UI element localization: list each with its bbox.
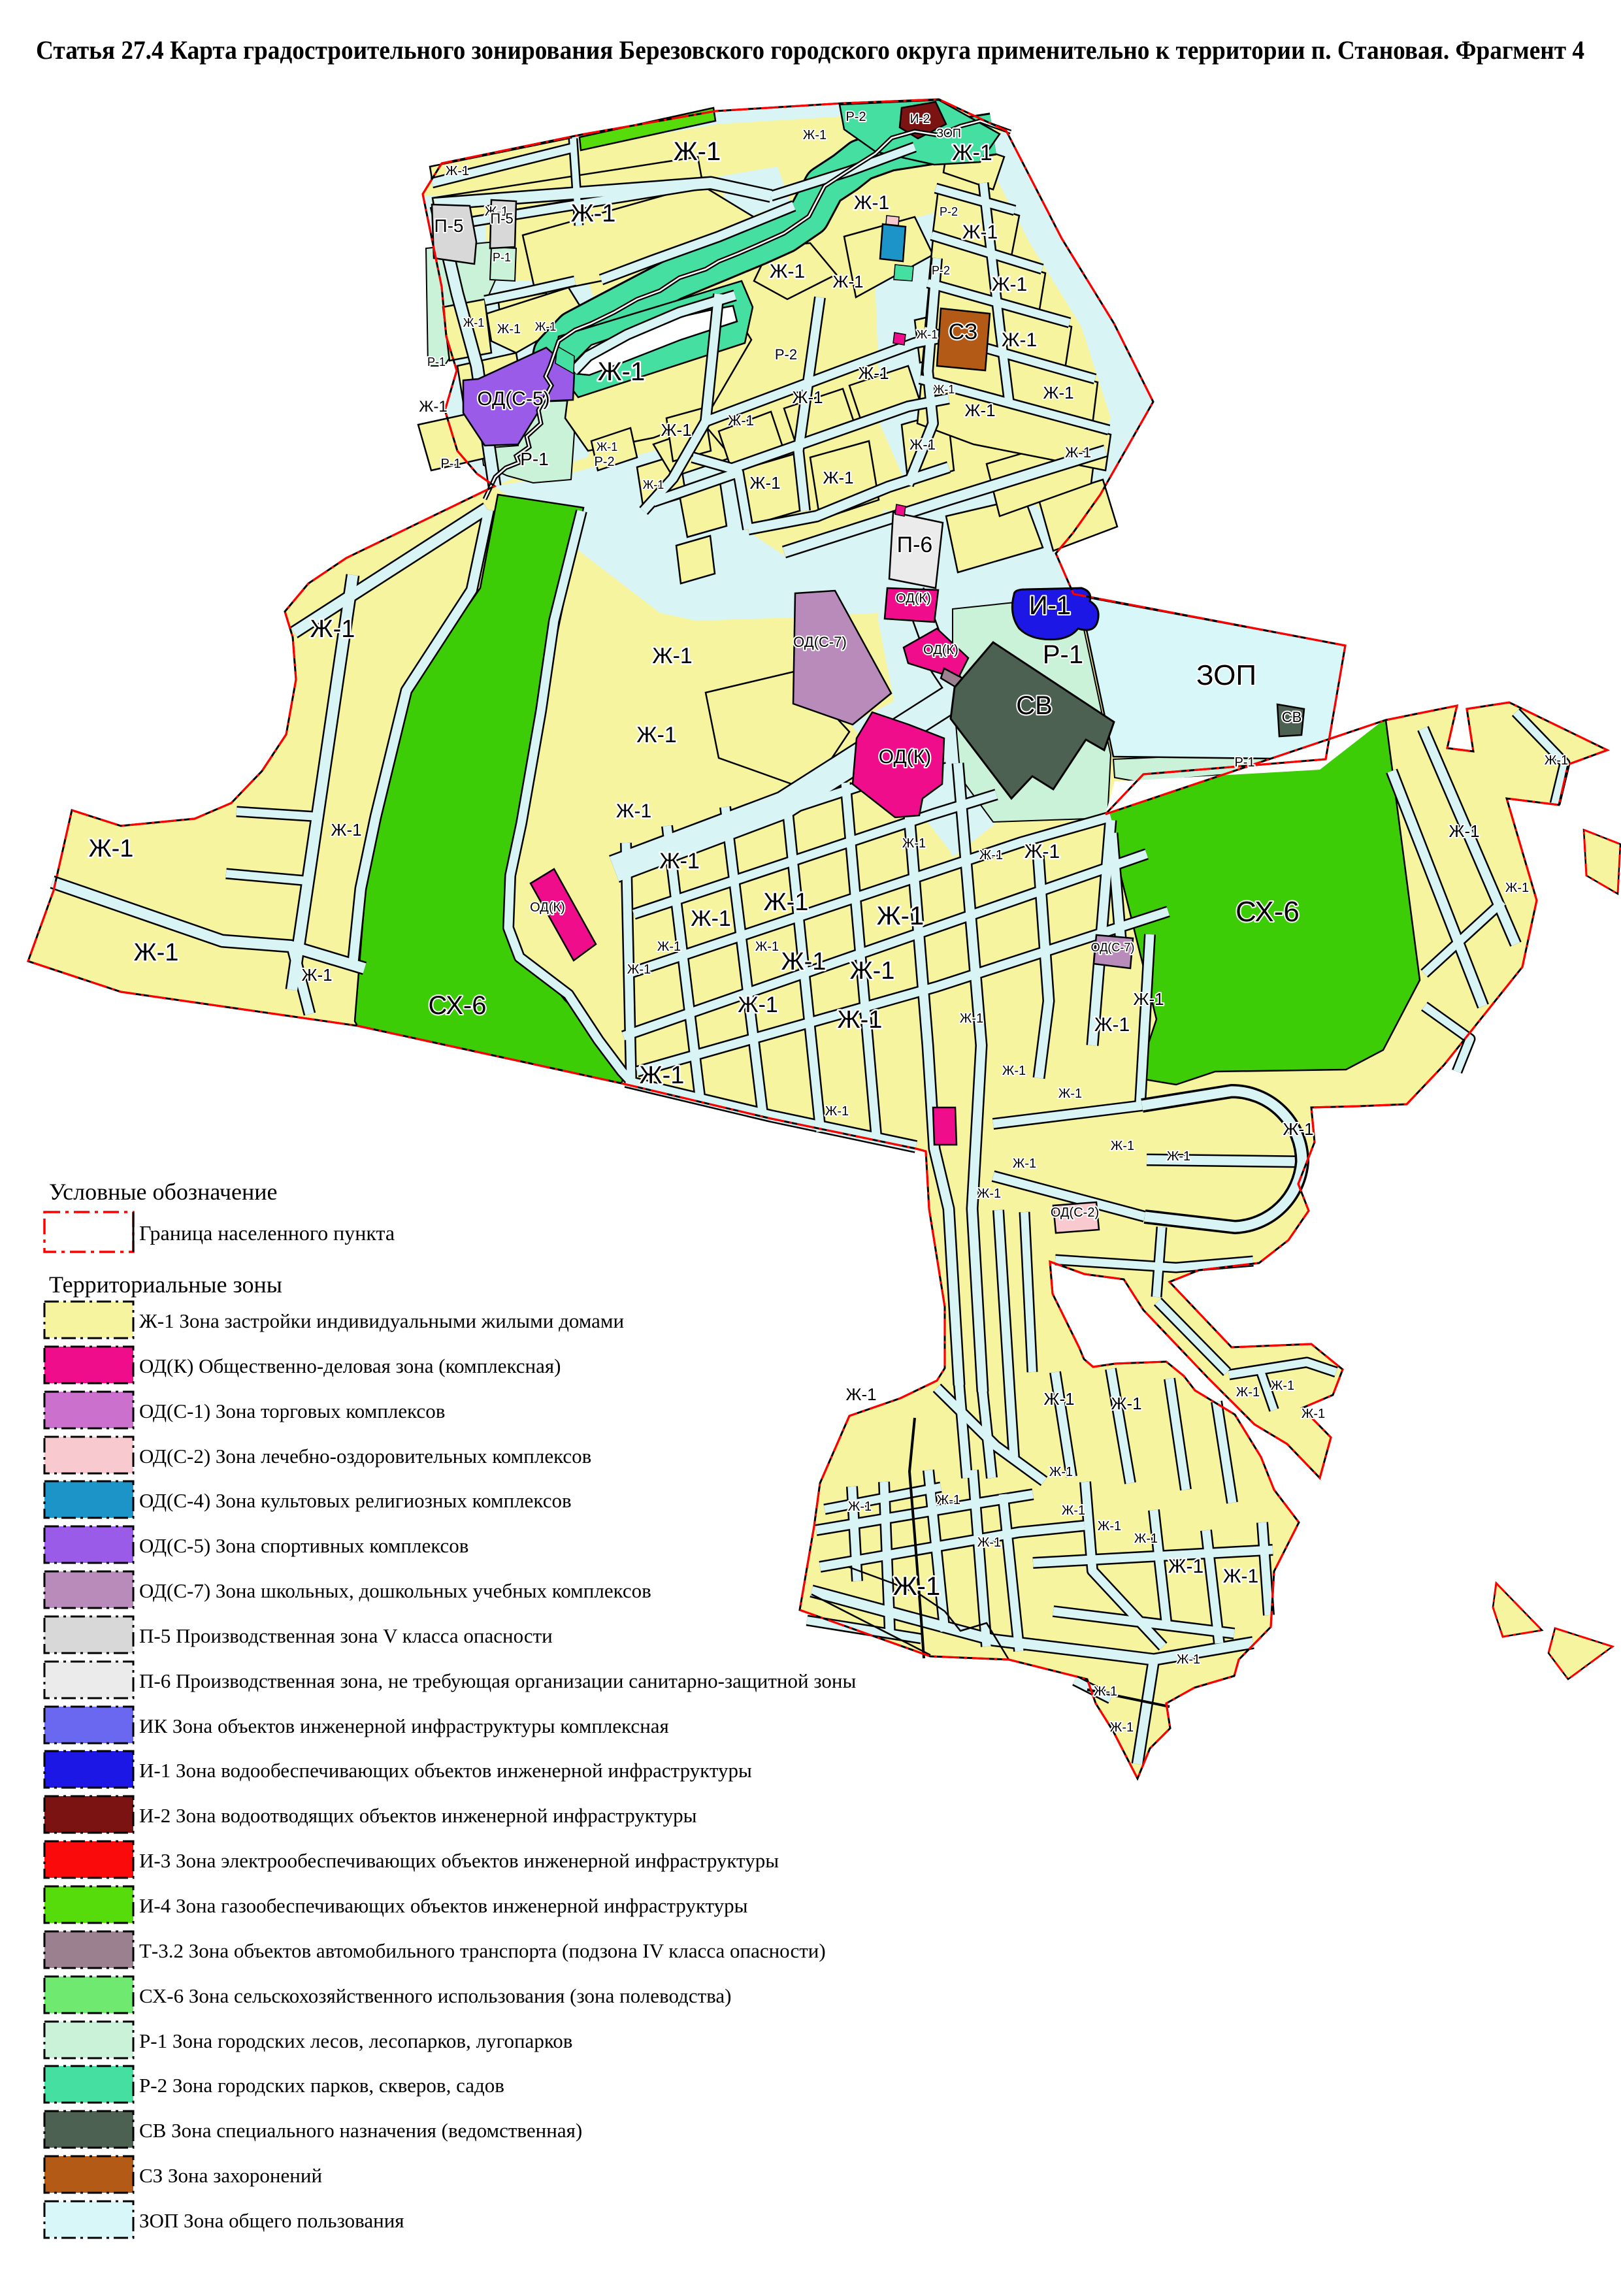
- svg-text:СХ-6: СХ-6: [1236, 896, 1300, 928]
- svg-text:Ж-1: Ж-1: [749, 473, 780, 493]
- svg-text:Ж-1: Ж-1: [803, 128, 827, 142]
- svg-text:Ж-1: Ж-1: [838, 1006, 883, 1034]
- svg-text:Ж-1: Ж-1: [960, 1011, 983, 1026]
- svg-text:ОД(К): ОД(К): [923, 643, 958, 657]
- svg-text:Ж-1: Ж-1: [992, 274, 1027, 295]
- svg-text:Ж-1: Ж-1: [134, 939, 179, 966]
- svg-text:Ж-1: Ж-1: [1283, 1119, 1313, 1139]
- svg-text:ОД(С-2): ОД(С-2): [1051, 1205, 1099, 1220]
- svg-text:Ж-1: Ж-1: [952, 140, 992, 165]
- svg-text:СХ-6 Зона сельскохозяйственног: СХ-6 Зона сельскохозяйственного использо…: [139, 1984, 731, 2007]
- svg-text:Ж-1: Ж-1: [310, 615, 355, 643]
- svg-text:Ж-1: Ж-1: [1111, 1139, 1134, 1153]
- svg-text:ОД(К): ОД(К): [530, 900, 565, 915]
- svg-text:ОД(С-4) Зона культовых религио: ОД(С-4) Зона культовых религиозных компл…: [139, 1489, 572, 1512]
- svg-text:Ж-1: Ж-1: [848, 1500, 872, 1514]
- svg-text:Ж-1: Ж-1: [1177, 1652, 1200, 1667]
- svg-text:Ж-1: Ж-1: [909, 436, 936, 453]
- svg-text:П-6 Производственная зона, не: П-6 Производственная зона, не требующая …: [139, 1669, 856, 1692]
- svg-text:Р-1: Р-1: [440, 457, 461, 471]
- svg-text:И-1: И-1: [1029, 591, 1071, 620]
- svg-text:Р-1: Р-1: [1043, 640, 1083, 669]
- svg-text:Ж-1: Ж-1: [792, 387, 823, 407]
- svg-text:Ж-1: Ж-1: [1098, 1519, 1121, 1533]
- svg-text:Ж-1: Ж-1: [419, 398, 448, 416]
- svg-text:Р-1: Р-1: [520, 449, 549, 469]
- svg-text:Ж-1: Ж-1: [1013, 1156, 1036, 1171]
- svg-text:Ж-1: Ж-1: [598, 357, 646, 386]
- svg-text:Статья 27.4 Карта градостроите: Статья 27.4 Карта градостроительного зон…: [36, 35, 1584, 65]
- svg-text:Ж-1: Ж-1: [652, 644, 693, 668]
- svg-text:ОД(С-2) Зона лечебно-оздоровит: ОД(С-2) Зона лечебно-оздоровительных ком…: [139, 1445, 591, 1468]
- svg-text:Р-1: Р-1: [427, 355, 446, 369]
- svg-text:Ж-1: Ж-1: [1111, 1394, 1141, 1413]
- svg-text:Ж-1: Ж-1: [1065, 444, 1091, 461]
- svg-text:Ж-1: Ж-1: [1167, 1149, 1190, 1164]
- svg-text:Ж-1: Ж-1: [1545, 753, 1568, 768]
- svg-text:Ж-1: Ж-1: [497, 322, 521, 336]
- svg-text:Ж-1: Ж-1: [616, 800, 651, 822]
- svg-text:Р-1 Зона городских лесов, лесо: Р-1 Зона городских лесов, лесопарков, лу…: [139, 2029, 572, 2052]
- svg-text:Ж-1: Ж-1: [640, 1062, 685, 1089]
- svg-text:Условные обозначение: Условные обозначение: [49, 1179, 277, 1205]
- svg-text:П-5: П-5: [434, 216, 463, 236]
- svg-text:ОД(С-1) Зона торговых комплекс: ОД(С-1) Зона торговых комплексов: [139, 1400, 445, 1422]
- svg-text:ОД(С-5): ОД(С-5): [477, 388, 549, 410]
- svg-text:И-1 Зона водообеспечивающих об: И-1 Зона водообеспечивающих объектов инж…: [139, 1759, 752, 1782]
- svg-text:Ж-1: Ж-1: [661, 420, 691, 440]
- svg-text:СВ: СВ: [1282, 709, 1302, 725]
- svg-text:Ж-1: Ж-1: [977, 1535, 1001, 1550]
- svg-text:СЗ Зона захоронений: СЗ Зона захоронений: [139, 2164, 322, 2187]
- svg-text:ОД(К): ОД(К): [879, 746, 931, 768]
- svg-text:Ж-1: Ж-1: [597, 440, 618, 453]
- svg-text:П-5 Производственная зона V кл: П-5 Производственная зона V класса опасн…: [139, 1624, 553, 1647]
- svg-text:Т-3.2 Зона объектов автомобиль: Т-3.2 Зона объектов автомобильного транс…: [139, 1939, 826, 1962]
- svg-text:Ж-1 Зона застройки индивидуаль: Ж-1 Зона застройки индивидуальными жилым…: [139, 1309, 624, 1332]
- svg-text:Р-1: Р-1: [493, 251, 511, 264]
- svg-text:Ж-1: Ж-1: [1271, 1379, 1294, 1393]
- svg-text:Ж-1: Ж-1: [1505, 881, 1529, 895]
- svg-text:ОД(К): ОД(К): [896, 591, 931, 606]
- svg-text:Р-2: Р-2: [594, 455, 614, 469]
- svg-text:Ж-1: Ж-1: [627, 962, 651, 977]
- svg-text:Ж-1: Ж-1: [1024, 841, 1060, 862]
- svg-text:Ж-1: Ж-1: [1094, 1014, 1130, 1036]
- svg-text:И-3 Зона электрообеспечивающих: И-3 Зона электрообеспечивающих объектов …: [139, 1849, 779, 1872]
- svg-text:Ж-1: Ж-1: [728, 412, 754, 429]
- svg-text:Ж-1: Ж-1: [934, 383, 955, 396]
- svg-text:Ж-1: Ж-1: [1002, 329, 1037, 351]
- svg-text:И-2 Зона водоотводящих объекто: И-2 Зона водоотводящих объектов инженерн…: [139, 1804, 697, 1827]
- svg-text:Ж-1: Ж-1: [657, 940, 681, 954]
- svg-text:Ж-1: Ж-1: [738, 992, 778, 1017]
- svg-text:Ж-1: Ж-1: [937, 1493, 960, 1507]
- svg-text:Ж-1: Ж-1: [331, 820, 361, 840]
- svg-text:Ж-1: Ж-1: [1236, 1385, 1260, 1400]
- svg-text:Р-2: Р-2: [775, 346, 797, 363]
- svg-text:ЗОП: ЗОП: [1196, 659, 1256, 691]
- svg-text:Ж-1: Ж-1: [691, 906, 731, 931]
- svg-text:Территориальные зоны: Территориальные зоны: [49, 1271, 282, 1298]
- svg-text:Ж-1: Ж-1: [850, 957, 895, 985]
- svg-text:Ж-1: Ж-1: [1134, 1532, 1158, 1546]
- svg-text:Ж-1: Ж-1: [1062, 1503, 1085, 1518]
- svg-text:Ж-1: Ж-1: [636, 723, 677, 747]
- svg-text:ЗОП: ЗОП: [936, 127, 961, 140]
- svg-text:Ж-1: Ж-1: [893, 1572, 941, 1601]
- svg-text:Р-2: Р-2: [940, 205, 958, 218]
- svg-text:СЗ: СЗ: [949, 320, 978, 344]
- svg-text:Ж-1: Ж-1: [854, 192, 889, 214]
- svg-text:СХ-6: СХ-6: [429, 991, 487, 1020]
- svg-text:Ж-1: Ж-1: [1043, 383, 1073, 402]
- svg-text:Ж-1: Ж-1: [1058, 1087, 1082, 1101]
- svg-text:Ж-1: Ж-1: [1223, 1566, 1258, 1587]
- svg-text:Ж-1: Ж-1: [917, 328, 938, 341]
- svg-text:П-6: П-6: [897, 533, 933, 557]
- svg-text:Ж-1: Ж-1: [825, 1104, 849, 1119]
- svg-text:Ж-1: Ж-1: [1449, 821, 1479, 841]
- svg-text:ОД(С-7): ОД(С-7): [1091, 941, 1135, 954]
- svg-text:ЗОП Зона общего пользования: ЗОП Зона общего пользования: [139, 2209, 404, 2232]
- svg-text:ОД(С-7): ОД(С-7): [793, 634, 847, 650]
- svg-text:Р-2: Р-2: [932, 264, 950, 277]
- svg-text:Ж-1: Ж-1: [764, 889, 809, 916]
- svg-text:Ж-1: Ж-1: [1094, 1684, 1117, 1699]
- svg-text:Ж-1: Ж-1: [659, 849, 700, 874]
- svg-text:СВ Зона специального назначени: СВ Зона специального назначения (ведомст…: [139, 2119, 582, 2142]
- svg-text:Ж-1: Ж-1: [755, 940, 779, 954]
- svg-text:СВ: СВ: [1016, 691, 1053, 720]
- svg-text:Ж-1: Ж-1: [1110, 1720, 1134, 1735]
- svg-text:Р-1: Р-1: [1234, 755, 1254, 770]
- svg-text:Ж-1: Ж-1: [977, 1187, 1001, 1201]
- svg-text:Ж-1: Ж-1: [823, 468, 853, 487]
- svg-text:Ж-1: Ж-1: [832, 272, 863, 291]
- svg-text:Ж-1: Ж-1: [877, 902, 925, 930]
- svg-text:Ж-1: Ж-1: [463, 316, 485, 329]
- svg-text:Ж-1: Ж-1: [89, 835, 134, 862]
- svg-text:Граница населенного пункта: Граница населенного пункта: [139, 1221, 395, 1245]
- svg-text:Ж-1: Ж-1: [1133, 989, 1164, 1009]
- svg-text:И-4 Зона газообеспечивающих об: И-4 Зона газообеспечивающих объектов инж…: [139, 1894, 748, 1917]
- svg-text:П-5: П-5: [490, 210, 513, 227]
- svg-text:Ж-1: Ж-1: [964, 401, 995, 420]
- svg-text:Ж-1: Ж-1: [1043, 1389, 1074, 1409]
- svg-text:И-2: И-2: [910, 112, 930, 126]
- svg-text:Р-2: Р-2: [845, 110, 866, 124]
- svg-text:Ж-1: Ж-1: [962, 221, 998, 243]
- svg-text:Ж-1: Ж-1: [571, 200, 616, 227]
- svg-text:Ж-1: Ж-1: [1049, 1465, 1073, 1479]
- svg-text:Ж-1: Ж-1: [770, 261, 805, 282]
- svg-text:ОД(С-5) Зона спортивных компле: ОД(С-5) Зона спортивных комплексов: [139, 1534, 468, 1557]
- svg-text:Ж-1: Ж-1: [446, 164, 469, 178]
- svg-text:Р-2 Зона городских парков, скв: Р-2 Зона городских парков, скверов, садо…: [139, 2074, 504, 2097]
- svg-text:Ж-1: Ж-1: [674, 137, 721, 166]
- svg-text:ОД(С-7) Зона школьных, дошколь: ОД(С-7) Зона школьных, дошкольных учебны…: [139, 1579, 651, 1602]
- svg-text:Ж-1: Ж-1: [858, 363, 889, 383]
- svg-text:Ж-1: Ж-1: [781, 948, 827, 976]
- svg-text:Ж-1: Ж-1: [535, 320, 557, 333]
- svg-text:Ж-1: Ж-1: [643, 478, 664, 491]
- svg-text:Ж-1: Ж-1: [1168, 1556, 1203, 1577]
- svg-text:Ж-1: Ж-1: [845, 1385, 876, 1404]
- svg-text:ИК Зона объектов инженерной ин: ИК Зона объектов инженерной инфраструкту…: [139, 1714, 669, 1737]
- svg-text:Ж-1: Ж-1: [979, 848, 1003, 862]
- svg-text:Ж-1: Ж-1: [902, 836, 926, 851]
- svg-text:Ж-1: Ж-1: [1302, 1407, 1325, 1421]
- svg-text:Ж-1: Ж-1: [301, 965, 332, 985]
- svg-text:ОД(К) Общественно-деловая зона: ОД(К) Общественно-деловая зона (комплекс…: [139, 1354, 561, 1377]
- svg-text:Ж-1: Ж-1: [1002, 1064, 1026, 1078]
